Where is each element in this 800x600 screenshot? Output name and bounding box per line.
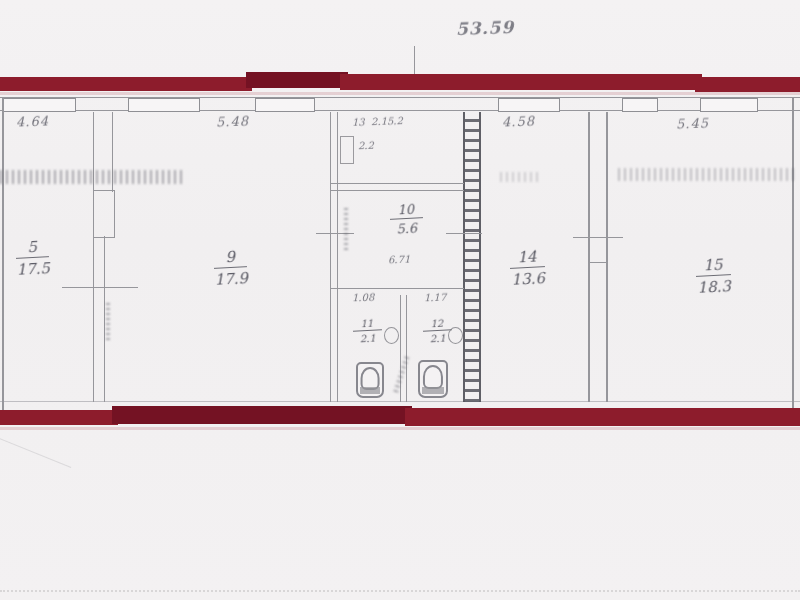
room5-width-dim: 4.64 — [16, 113, 49, 129]
small-room-right-dim: 1.17 — [424, 292, 447, 304]
right-outer-wall — [792, 97, 794, 412]
door-tick — [446, 233, 482, 234]
room-area: 2.1 — [353, 330, 382, 344]
top-wall-line — [0, 97, 800, 98]
illegible-dimension-scribble — [106, 300, 110, 340]
window — [2, 98, 76, 112]
bottom-wall-band-shadow — [0, 427, 800, 430]
bottom-wall-band-mid — [112, 406, 412, 424]
room15-width-dim: 5.45 — [676, 115, 709, 131]
door-tick — [573, 237, 623, 238]
wall-jog — [93, 190, 115, 238]
partition-wall-14-15 — [588, 112, 590, 402]
room10-label: 10 5.6 — [389, 201, 423, 237]
door-tick — [588, 262, 608, 263]
faded-stamp-text — [618, 168, 795, 181]
faded-stamp-text — [500, 172, 540, 182]
toilet-icon — [356, 362, 384, 398]
bottom-wall-band-left — [0, 410, 118, 425]
room11-label: 11 2.1 — [352, 317, 382, 344]
room-number: 14 — [509, 247, 545, 269]
window — [128, 98, 200, 112]
room-area: 17.9 — [214, 267, 248, 289]
door-tick — [62, 287, 138, 288]
room-number: 10 — [389, 201, 422, 220]
top-wall-band-right — [695, 77, 800, 92]
room-area: 18.3 — [696, 275, 732, 297]
room14-width-dim: 4.58 — [502, 113, 535, 129]
door-tick — [316, 233, 354, 234]
top-wall-band-shadow — [0, 92, 800, 95]
top-wall-line — [0, 110, 800, 111]
room5-label: 5 17.5 — [15, 237, 50, 279]
top-wall-band-left — [0, 77, 252, 91]
overall-dimension-label: 53.59 — [456, 17, 515, 39]
room13-bottom-wall — [330, 183, 464, 184]
illegible-dimension-scribble — [393, 355, 409, 393]
window — [255, 98, 315, 112]
small-rooms-divider-wall — [406, 295, 407, 402]
mid-width-dimension: 6.71 — [388, 254, 411, 266]
room9-width-dim: 5.48 — [216, 113, 249, 129]
top-wall-band-step — [246, 72, 348, 88]
dimension-tick — [414, 46, 415, 76]
room-number: 5 — [15, 237, 49, 259]
room14-label: 14 13.6 — [509, 247, 546, 289]
room9-label: 9 17.9 — [213, 247, 248, 289]
room13-number: 13 — [352, 116, 365, 127]
top-wall-band-mid — [340, 74, 702, 90]
left-outer-wall — [2, 97, 4, 412]
room13-note: 2.15.2 — [371, 115, 403, 127]
room13-bottom-wall — [330, 190, 464, 191]
small-rooms-top-wall — [330, 288, 464, 289]
room-area: 17.5 — [16, 257, 50, 279]
faded-stamp-text — [0, 170, 184, 184]
floor-plan-scan: 53.59 13 2.15.2 2.2 10 5.6 6.7 — [0, 0, 800, 600]
room-number: 9 — [213, 247, 247, 269]
room-area: 5.6 — [390, 218, 423, 237]
toilet-icon — [418, 360, 448, 398]
shaft-hatched-wall — [463, 112, 481, 402]
room13-header: 13 2.15.2 — [352, 115, 403, 128]
toilet-tank — [360, 387, 380, 394]
scan-artifact-line — [0, 437, 71, 468]
room15-label: 15 18.3 — [695, 255, 732, 297]
room13-area-label: 2.2 — [358, 140, 374, 152]
partition-wall-5-9 — [93, 112, 94, 402]
bottom-wall-band-right — [405, 408, 800, 426]
window — [498, 98, 560, 112]
sink-icon — [384, 327, 399, 344]
partition-wall-14-15 — [606, 112, 608, 402]
scan-artifact-dots — [0, 590, 800, 592]
small-room-left-dim: 1.08 — [352, 292, 375, 304]
sink-icon — [448, 327, 463, 344]
window — [622, 98, 658, 112]
mid-section-left-wall — [337, 112, 338, 402]
toilet-tank — [422, 387, 444, 394]
partition-wall-5-9 — [104, 236, 105, 402]
mid-section-left-wall — [330, 112, 331, 402]
room-area: 13.6 — [510, 267, 546, 289]
vent-shaft-icon — [340, 136, 354, 164]
toilet-bowl — [423, 365, 443, 389]
window — [700, 98, 758, 112]
illegible-dimension-scribble — [344, 205, 348, 250]
room-number: 15 — [695, 255, 731, 277]
